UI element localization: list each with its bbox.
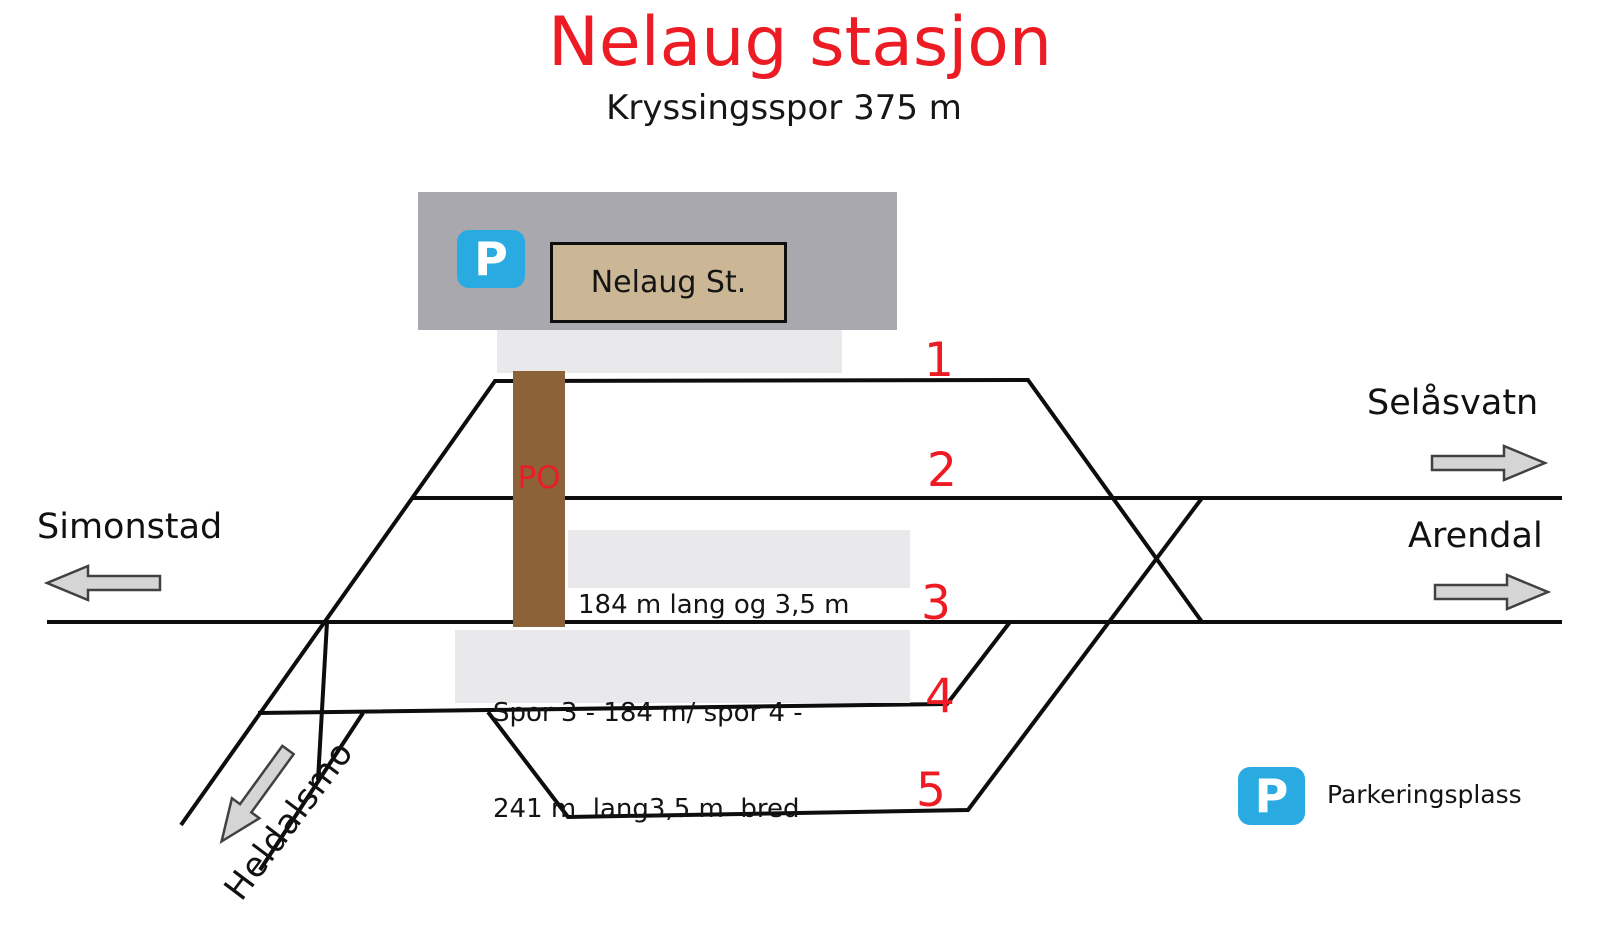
track3-4-note-line1: Spor 3 - 184 m/ spor 4 - <box>493 697 910 729</box>
destination-simonstad: Simonstad <box>37 508 222 547</box>
track-2-label: 2 <box>927 447 957 494</box>
page-subtitle: Kryssingsspor 375 m <box>0 90 1568 127</box>
track3-4-note-line2: 241 m lang3,5 m bred <box>493 793 910 825</box>
track-3-label: 3 <box>921 580 951 627</box>
overpass-label: PO <box>513 463 565 494</box>
arrow-east-upper-icon <box>1432 446 1545 480</box>
parking-legend-icon: P <box>1238 767 1305 825</box>
track-4-label: 4 <box>925 673 955 720</box>
station-sign-label: Nelaug St. <box>591 265 747 300</box>
parking-icon: P <box>457 230 525 288</box>
station-diagram: Nelaug stasjon Kryssingsspor 375 m P Nel… <box>0 0 1600 927</box>
track2-note: 184 m lang og 3,5 m bred <box>568 530 910 588</box>
track2-note-line1: 184 m lang og 3,5 m <box>578 591 910 620</box>
parking-letter: P <box>1255 769 1289 823</box>
track-5-label: 5 <box>916 767 946 814</box>
arrow-west-icon <box>47 566 160 600</box>
parking-legend-label: Parkeringsplass <box>1327 780 1522 809</box>
track-1-label: 1 <box>924 337 954 384</box>
destination-arendal: Arendal <box>1408 517 1543 556</box>
parking-letter: P <box>474 232 508 286</box>
arrow-east-lower-icon <box>1435 575 1548 609</box>
destination-selasvatn: Selåsvatn <box>1367 384 1538 423</box>
overpass-bar <box>513 371 565 627</box>
station-sign: Nelaug St. <box>550 242 787 323</box>
page-title: Nelaug stasjon <box>0 6 1600 81</box>
track3-4-note: Spor 3 - 184 m/ spor 4 - 241 m lang3,5 m… <box>455 630 910 703</box>
